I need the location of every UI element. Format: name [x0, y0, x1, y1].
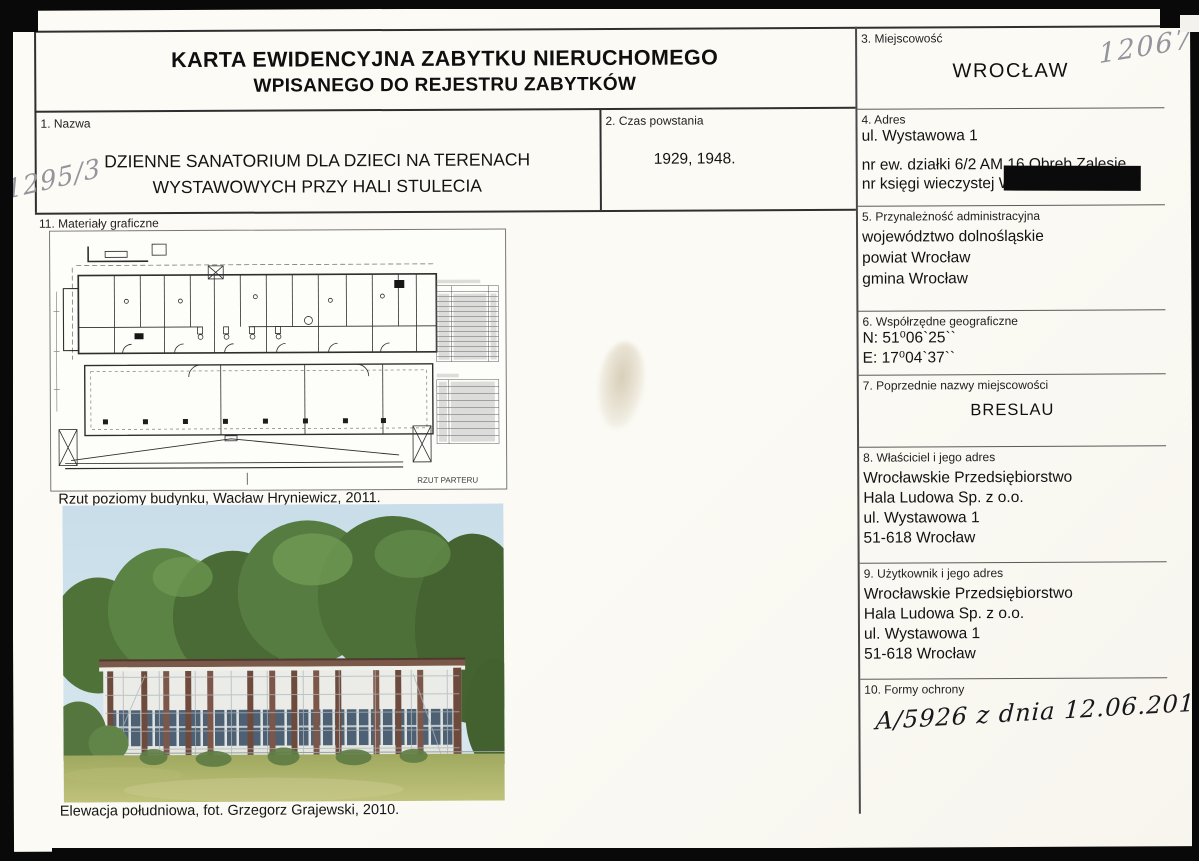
scanner-edge-right [1192, 0, 1199, 861]
photo-caption: Elewacja południowa, fot. Grzegorz Graje… [60, 802, 399, 820]
redaction-bar [1004, 166, 1141, 191]
field-wlasciciel-label: 8. Właściciel i jego adres [863, 450, 995, 465]
field-wspolrzedne-label: 6. Współrzędne geograficzne [862, 314, 1017, 329]
field-uzytkownik-label: 9. Użytkownik i jego adres [864, 566, 1003, 581]
field-uzytkownik-line1: Wrocławskie Przedsiębiorstwo [864, 584, 1073, 605]
field-formy-label: 10. Formy ochrony [864, 682, 964, 697]
plan-title-text: RZUT PARTERU [417, 476, 478, 485]
field-wlasciciel-line4: 51-618 Wrocław [863, 528, 975, 549]
field-adres-line3: nr księgi wieczystej W [862, 174, 1014, 195]
field-przynaleznosc-line1: województwo dolnośląskie [862, 227, 1044, 248]
card-page: KARTA EWIDENCYJNA ZABYTKU NIERUCHOMEGO W… [0, 0, 1199, 861]
scanned-card: KARTA EWIDENCYJNA ZABYTKU NIERUCHOMEGO W… [0, 0, 1199, 861]
scan-corner-notch [1180, 15, 1199, 32]
field-wspolrzedne-line2: E: 17⁰04`37`` [863, 348, 955, 369]
field-czas-label: 2. Czas powstania [605, 113, 703, 128]
field-wspolrzedne-line1: N: 51⁰06`25`` [863, 328, 956, 349]
field-poprzednie-label: 7. Poprzednie nazwy miejscowości [863, 378, 1048, 393]
field-adres-label: 4. Adres [861, 113, 905, 128]
field-uzytkownik-line2: Hala Ludowa Sp. z o.o. [864, 604, 1024, 625]
scanner-edge-bottom [52, 848, 1199, 861]
field-wlasciciel-line1: Wrocławskie Przedsiębiorstwo [863, 468, 1072, 489]
field-miejscowosc-label: 3. Miejscowość [861, 31, 942, 46]
site-photo-image [62, 503, 504, 802]
field-nazwa-value-line1: DZIENNE SANATORIUM DLA DZIECI NA TERENAC… [35, 149, 600, 173]
field-materialy-label: 11. Materiały graficzne [39, 216, 159, 231]
field-poprzednie-value: BRESLAU [857, 400, 1168, 421]
field-przynaleznosc-line3: gmina Wrocław [862, 269, 968, 290]
field-uzytkownik-line3: ul. Wystawowa 1 [864, 624, 980, 645]
field-nazwa-label: 1. Nazwa [40, 116, 90, 131]
field-wlasciciel-line2: Hala Ludowa Sp. z o.o. [863, 488, 1023, 509]
field-przynaleznosc-label: 5. Przynależność administracyjna [862, 209, 1040, 224]
field-adres-line1: ul. Wystawowa 1 [862, 126, 978, 147]
site-photo-box [62, 503, 504, 802]
floor-plan-box: RZUT PARTERU [49, 228, 507, 491]
field-wlasciciel-line3: ul. Wystawowa 1 [863, 508, 979, 529]
card-title-line2: WPISANEGO DO REJESTRU ZABYTKÓW [34, 73, 855, 99]
scanner-edge-top [0, 0, 1199, 9]
field-uzytkownik-line4: 51-618 Wrocław [864, 644, 976, 665]
field-nazwa-value-line2: WYSTAWOWYCH PRZY HALI STULECIA [35, 175, 600, 199]
floor-plan-drawing: RZUT PARTERU [50, 229, 506, 490]
photo-building [99, 658, 465, 761]
field-przynaleznosc-line2: powiat Wrocław [862, 248, 970, 269]
scanner-corner-top-left [0, 0, 38, 32]
field-czas-value: 1929, 1948. [654, 149, 736, 170]
card-title-line1: KARTA EWIDENCYJNA ZABYTKU NIERUCHOMEGO [34, 45, 855, 74]
scanner-edge-left [0, 0, 13, 738]
